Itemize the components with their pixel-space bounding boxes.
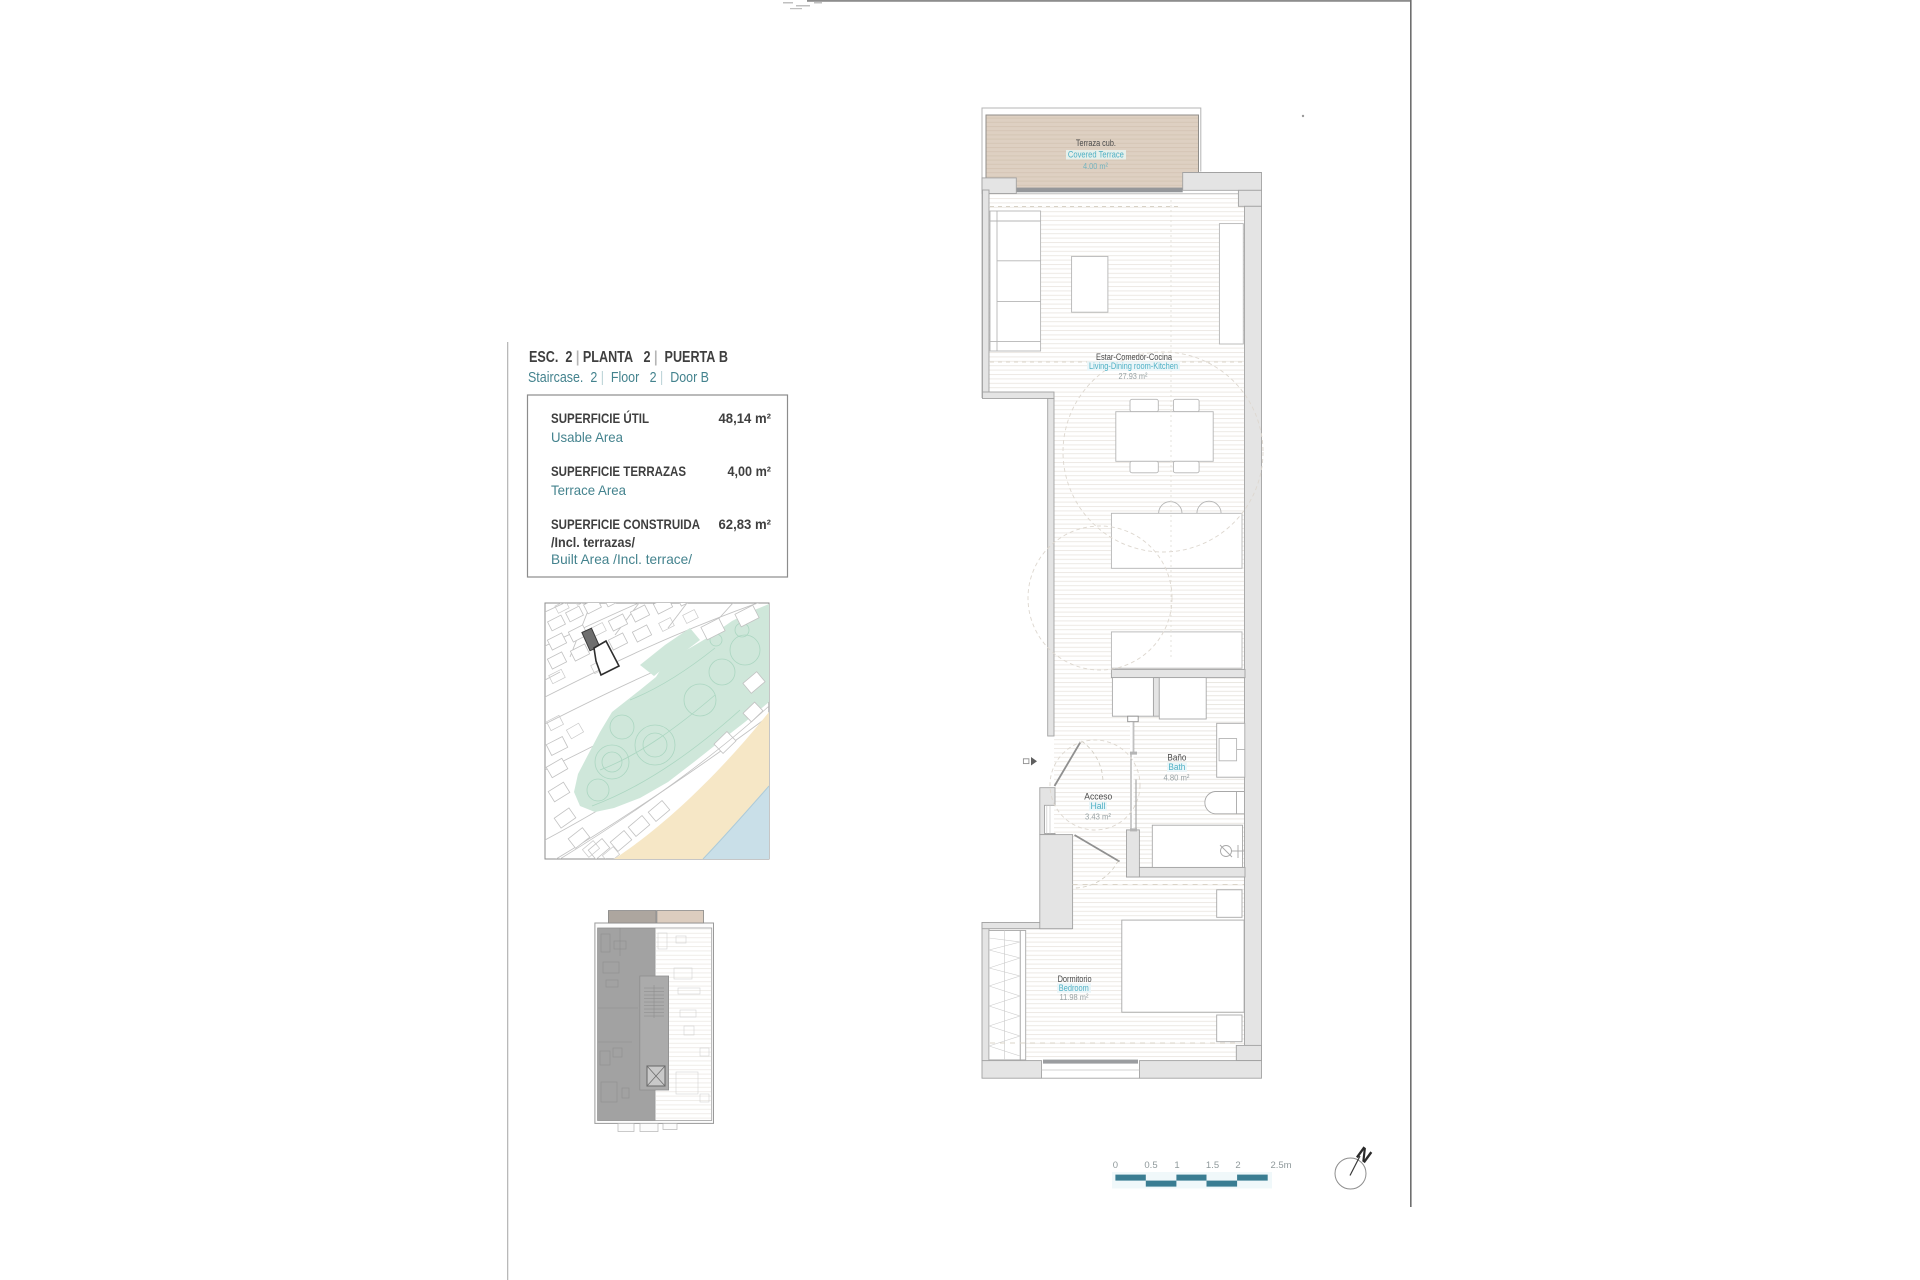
svg-text:Hall: Hall xyxy=(1091,801,1106,811)
svg-text:Built Area /Incl. terrace/: Built Area /Incl. terrace/ xyxy=(551,551,692,567)
svg-text:SUPERFICIE CONSTRUIDA: SUPERFICIE CONSTRUIDA xyxy=(551,516,700,532)
svg-text:0: 0 xyxy=(1113,1160,1118,1171)
svg-text:ESC. 2 | PLANTA 2 | PUERTA: ESC. 2 | PLANTA 2 | PUERTA B xyxy=(529,349,728,366)
svg-text:11.98 m²: 11.98 m² xyxy=(1060,992,1089,1002)
svg-text:Baño: Baño xyxy=(1167,753,1186,763)
svg-text:48,14 m²: 48,14 m² xyxy=(719,410,772,426)
svg-text:4.80 m²: 4.80 m² xyxy=(1164,773,1190,783)
svg-text:1.5: 1.5 xyxy=(1206,1160,1219,1171)
svg-text:2.5m: 2.5m xyxy=(1270,1160,1291,1171)
svg-text:Living-Dining room-Kitchen: Living-Dining room-Kitchen xyxy=(1089,361,1178,371)
svg-text:Covered Terrace: Covered Terrace xyxy=(1068,150,1124,160)
svg-text:Terraza cub.: Terraza cub. xyxy=(1076,138,1116,148)
svg-text:4.00 m²: 4.00 m² xyxy=(1083,161,1108,171)
svg-text:Usable Area: Usable Area xyxy=(551,429,623,445)
svg-text:Terrace Area: Terrace Area xyxy=(551,482,626,498)
svg-text:SUPERFICIE TERRAZAS: SUPERFICIE TERRAZAS xyxy=(551,463,686,479)
svg-text:Staircase. 2 | Floor 2 |: Staircase. 2 | Floor 2 | Door B xyxy=(528,370,709,386)
svg-text:27.93 m²: 27.93 m² xyxy=(1119,371,1148,381)
svg-text:Bath: Bath xyxy=(1168,762,1185,772)
svg-text:0.5: 0.5 xyxy=(1144,1160,1157,1171)
svg-text:1: 1 xyxy=(1174,1160,1179,1171)
svg-text:Acceso: Acceso xyxy=(1084,792,1112,802)
svg-text:62,83 m²: 62,83 m² xyxy=(719,516,772,532)
svg-text:2: 2 xyxy=(1235,1160,1240,1171)
svg-text:4,00 m²: 4,00 m² xyxy=(728,463,772,479)
svg-text:SUPERFICIE ÚTIL: SUPERFICIE ÚTIL xyxy=(551,409,649,426)
svg-text:/Incl. terrazas/: /Incl. terrazas/ xyxy=(551,534,635,550)
svg-text:3.43 m²: 3.43 m² xyxy=(1085,812,1111,822)
